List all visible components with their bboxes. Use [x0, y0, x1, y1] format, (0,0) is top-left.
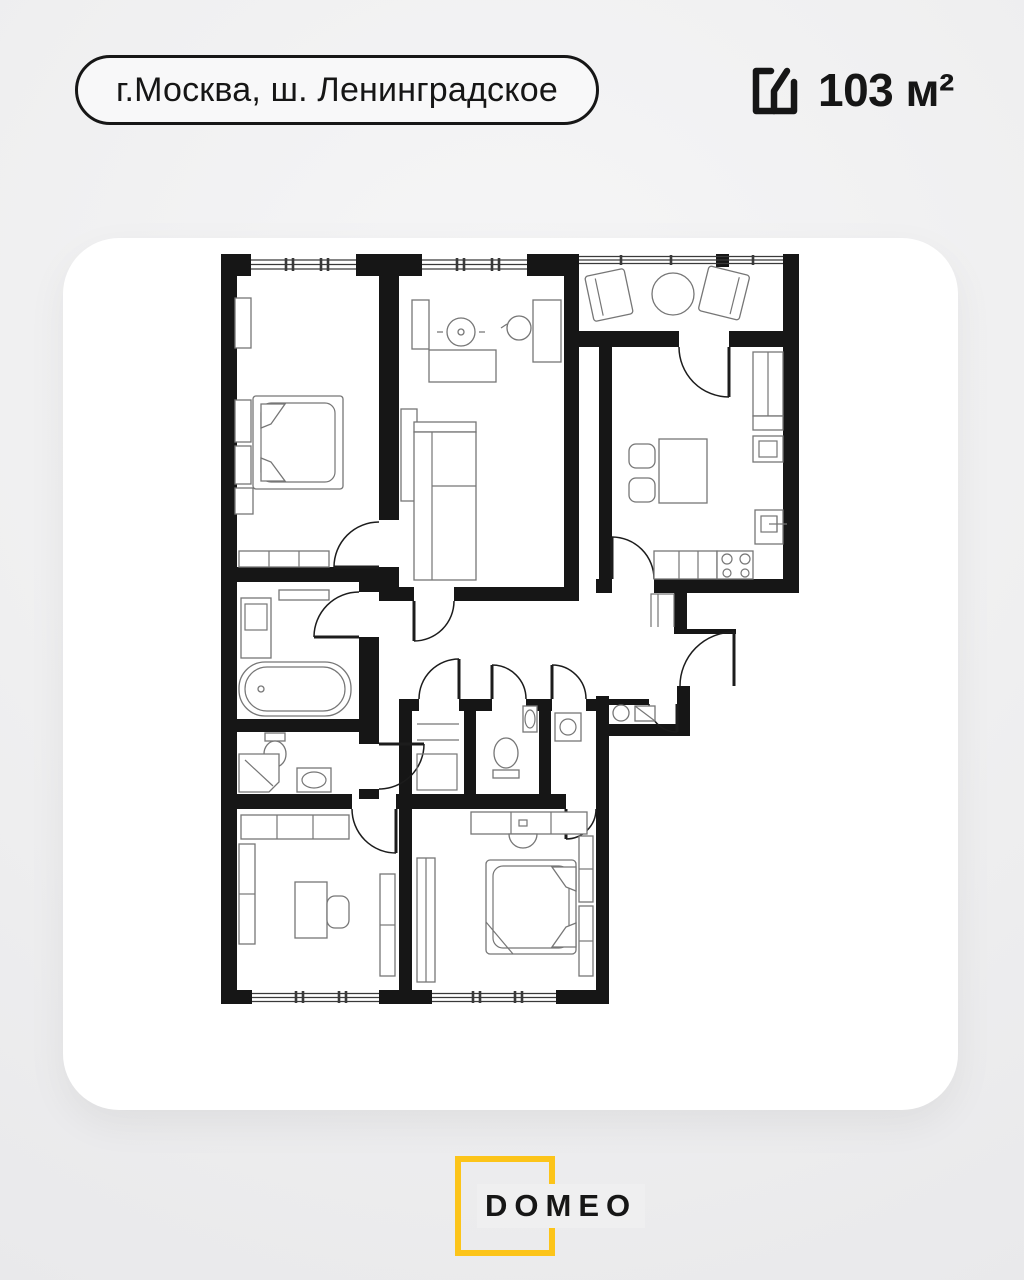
floor-plan-card — [63, 238, 958, 1110]
room-bedroom-1 — [235, 298, 343, 567]
entry-bathroom — [613, 705, 655, 721]
room-kitchen — [629, 352, 787, 579]
storage-corridor — [555, 713, 581, 741]
floor-plan — [221, 254, 799, 1004]
room-study — [239, 815, 395, 976]
room-wc — [493, 706, 537, 778]
location-label: г.Москва, ш. Ленинградское — [116, 71, 558, 110]
room-living — [401, 300, 561, 580]
area-badge: 103 м² — [747, 60, 954, 120]
floorplan-icon — [747, 62, 803, 118]
brand-logo: DOMEO — [455, 1156, 555, 1256]
room-bathroom — [239, 590, 351, 716]
room-balcony — [585, 266, 750, 322]
logo-text: DOMEO — [477, 1184, 645, 1228]
area-value: 103 м² — [818, 63, 954, 117]
entry-hall — [651, 594, 674, 627]
location-badge: г.Москва, ш. Ленинградское — [75, 55, 599, 125]
hall-closet — [417, 724, 459, 790]
room-shower-wc — [239, 733, 331, 792]
